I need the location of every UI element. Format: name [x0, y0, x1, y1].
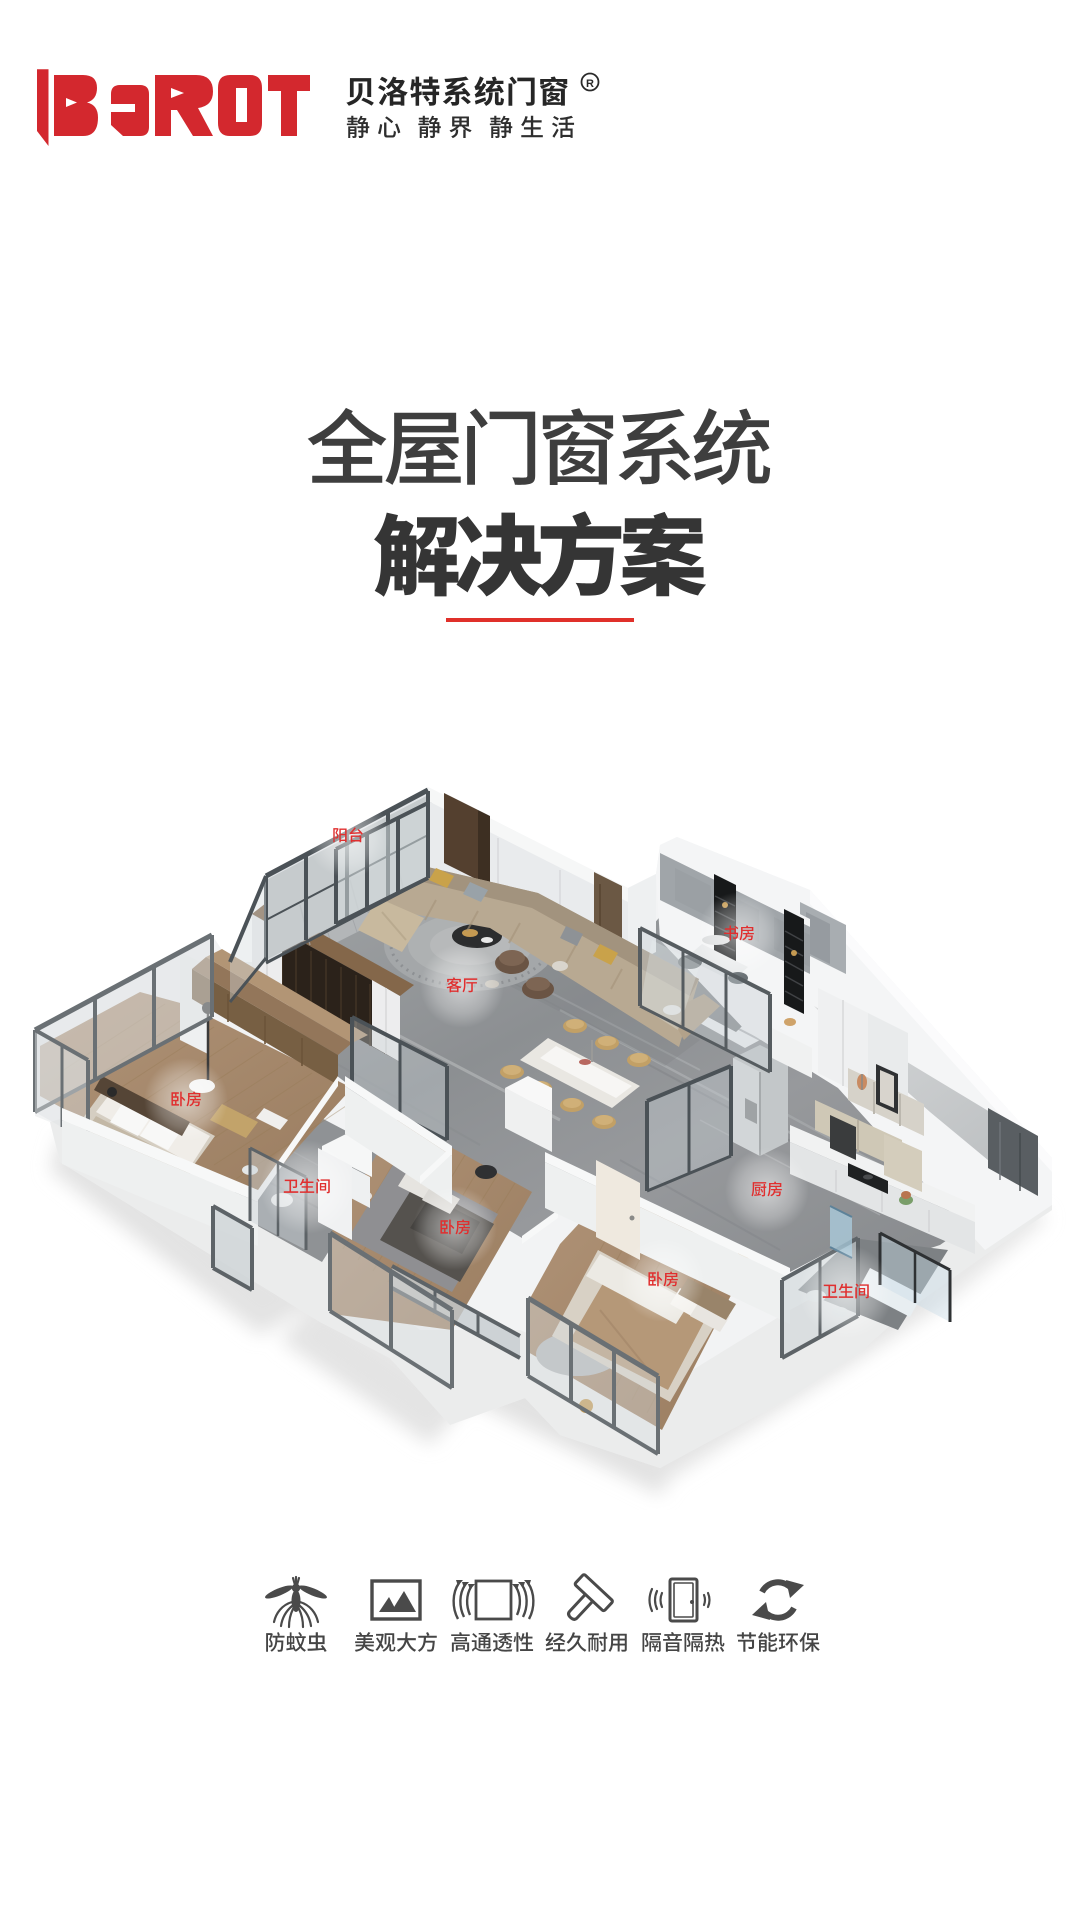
svg-text:R: R: [586, 78, 594, 90]
